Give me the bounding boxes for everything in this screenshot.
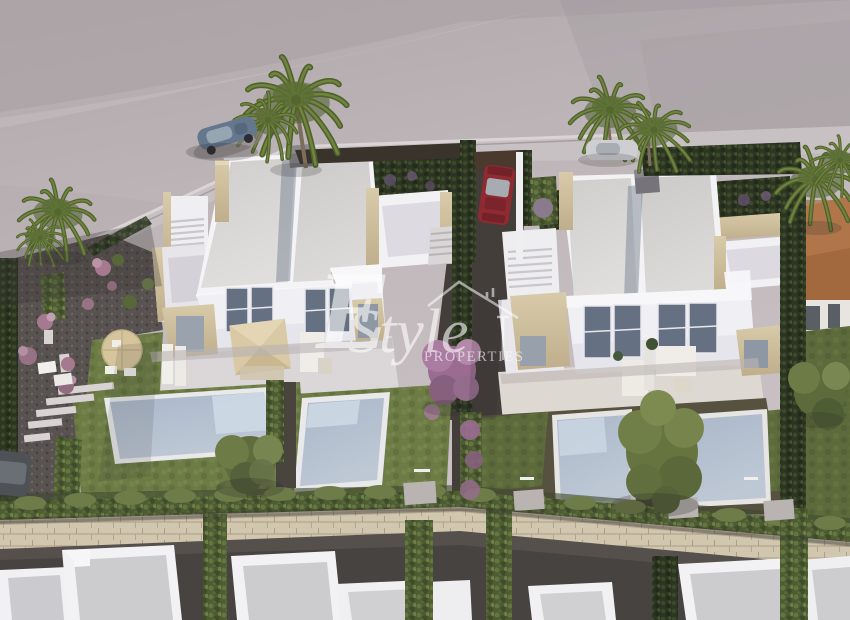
svg-text:PROPERTIES: PROPERTIES: [424, 349, 525, 365]
